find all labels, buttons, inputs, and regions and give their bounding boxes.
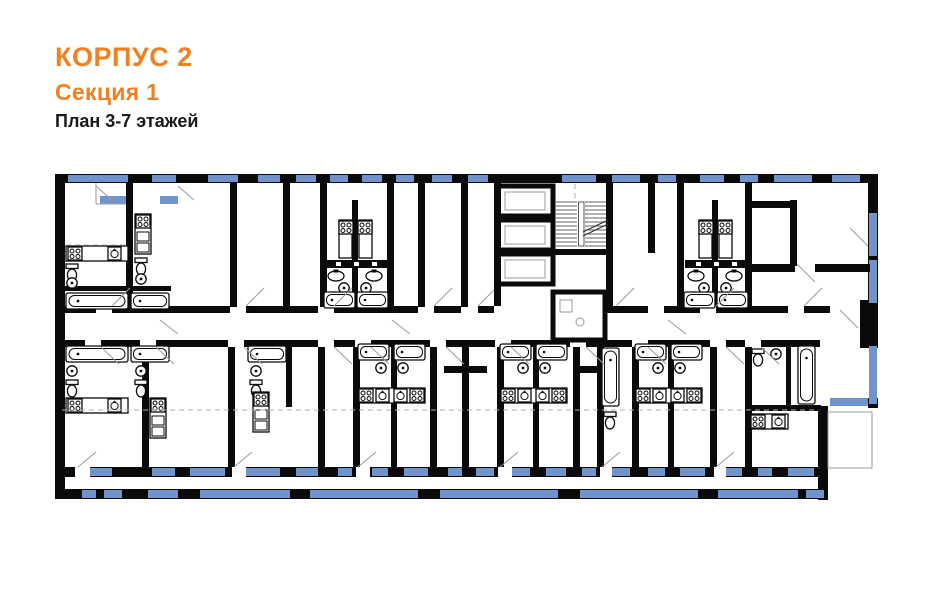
windows	[68, 175, 877, 498]
floor-plan-svg	[0, 0, 941, 600]
floor-plan	[0, 0, 941, 600]
elevator-shafts	[497, 186, 605, 340]
fixtures-bottom-row	[66, 344, 815, 438]
fixtures-top-row	[66, 214, 748, 309]
corridor-walls	[65, 306, 830, 347]
dashed-lines	[62, 245, 818, 410]
